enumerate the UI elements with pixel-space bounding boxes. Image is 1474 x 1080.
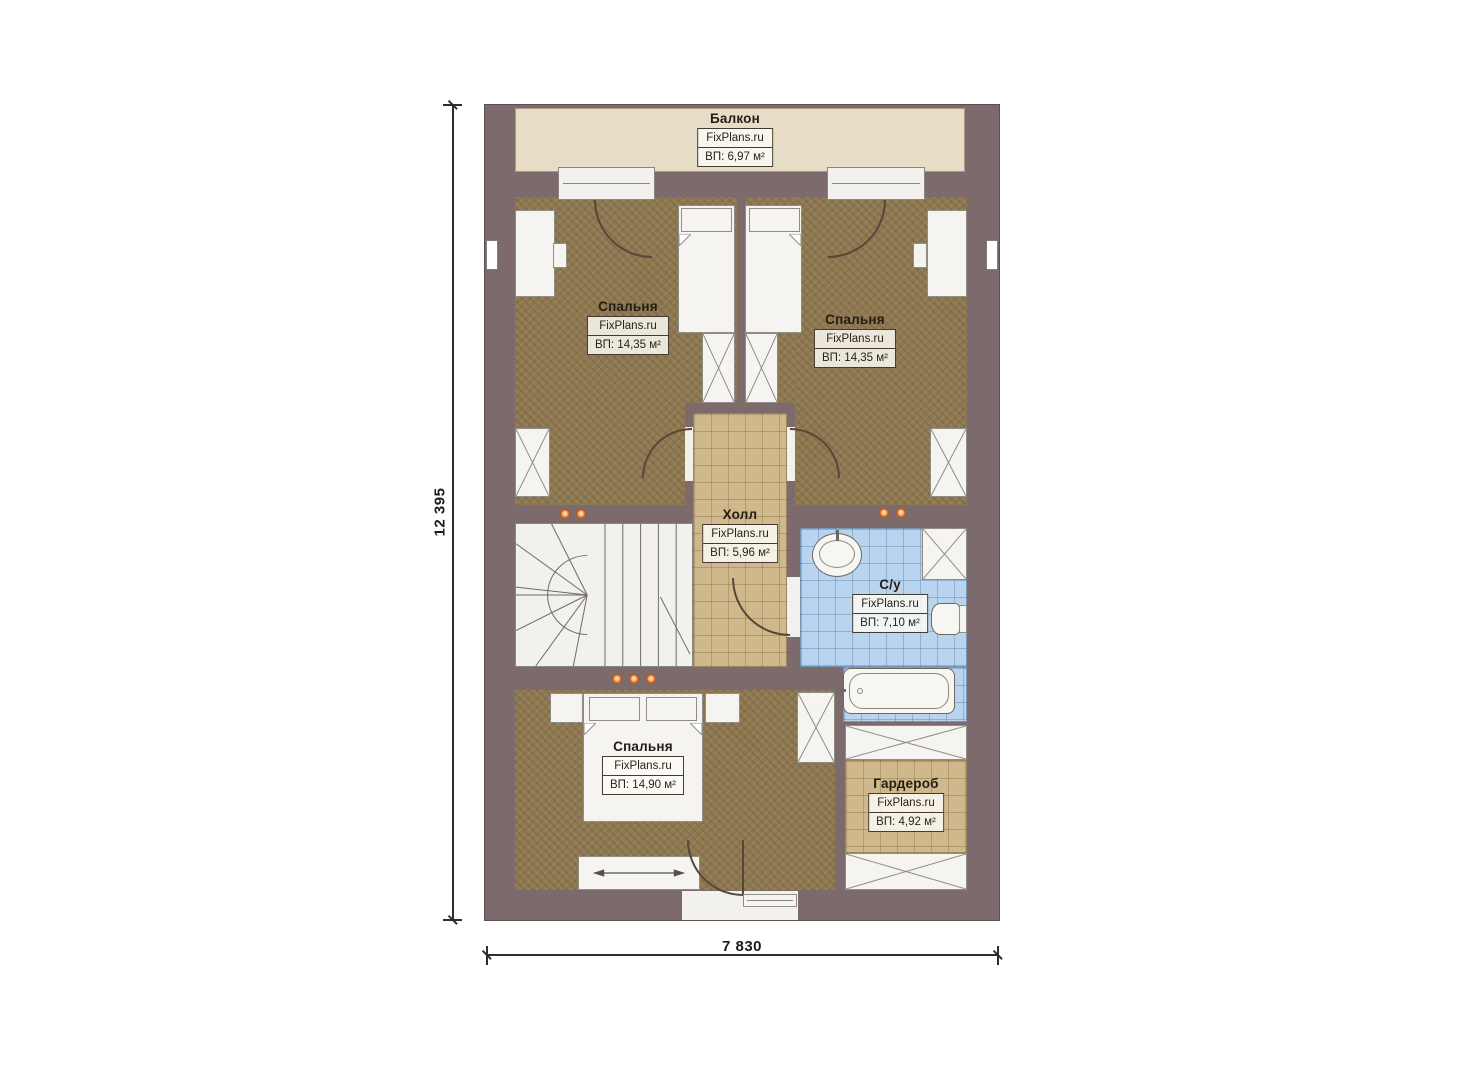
closet [702, 333, 735, 403]
room-area: ВП: 14,35 м² [588, 335, 668, 354]
toilet [931, 603, 960, 635]
closet [797, 692, 835, 763]
room-area: ВП: 14,35 м² [815, 348, 895, 367]
bottom-door-leaf [743, 894, 797, 907]
floor-plan: Балкон FixPlans.ru ВП: 6,97 м² Спальня F… [485, 105, 999, 920]
hall-label: Холл FixPlans.ru ВП: 5,96 м² [702, 507, 778, 563]
closet [930, 428, 967, 497]
room-info-box: FixPlans.ru ВП: 14,90 м² [602, 756, 684, 795]
slide-arrow [579, 857, 699, 889]
room-name: Спальня [587, 299, 669, 314]
balcony-door-right [827, 167, 925, 200]
wall-marker-dot [576, 509, 586, 519]
room-name: Спальня [814, 312, 896, 327]
room-name: Спальня [602, 739, 684, 754]
sink-tap [836, 530, 839, 541]
blanket-fold [584, 723, 596, 735]
desk [515, 210, 555, 297]
pillow [589, 697, 640, 721]
room-name: Гардероб [868, 776, 944, 791]
bathtub-drain [857, 688, 863, 694]
pillow [681, 208, 732, 232]
dresser [578, 856, 700, 890]
blanket-fold [679, 234, 691, 246]
desk [927, 210, 967, 297]
blanket-fold [690, 723, 702, 735]
wall-marker-dot [646, 674, 656, 684]
dimension-line-vertical [452, 105, 454, 920]
brand-watermark: FixPlans.ru [815, 330, 895, 348]
wardrobe-label: Гардероб FixPlans.ru ВП: 4,92 м² [868, 776, 944, 832]
toilet-tank [959, 605, 967, 633]
room-name: Холл [702, 507, 778, 522]
nightstand [550, 693, 583, 723]
blanket-fold [789, 234, 801, 246]
pillow [749, 208, 800, 232]
staircase [515, 523, 693, 667]
brand-watermark: FixPlans.ru [588, 317, 668, 335]
brand-watermark: FixPlans.ru [603, 757, 683, 775]
room-info-box: FixPlans.ru ВП: 5,96 м² [702, 524, 778, 563]
brand-watermark: FixPlans.ru [869, 794, 943, 812]
nightstand [705, 693, 740, 723]
wall-marker-dot [560, 509, 570, 519]
closet [922, 528, 967, 580]
dimension-height: 12 395 [432, 488, 449, 537]
wall-marker-dot [896, 508, 906, 518]
room-info-box: FixPlans.ru ВП: 14,35 м² [814, 329, 896, 368]
room-name: Балкон [697, 111, 773, 126]
floor-plan-page: Балкон FixPlans.ru ВП: 6,97 м² Спальня F… [0, 0, 1474, 1080]
dimension-width: 7 830 [722, 938, 762, 955]
room-info-box: FixPlans.ru ВП: 7,10 м² [852, 594, 928, 633]
stair-treads [516, 524, 692, 666]
room-area: ВП: 7,10 м² [853, 613, 927, 632]
brand-watermark: FixPlans.ru [698, 129, 772, 147]
wall-marker-dot [629, 674, 639, 684]
bathtub-tap [840, 689, 846, 692]
bed-single [678, 205, 735, 333]
balcony-label: Балкон FixPlans.ru ВП: 6,97 м² [697, 111, 773, 167]
room-area: ВП: 6,97 м² [698, 147, 772, 166]
closet [745, 333, 778, 403]
window-left [486, 240, 498, 270]
bathroom-label: С/у FixPlans.ru ВП: 7,10 м² [852, 577, 928, 633]
room-info-box: FixPlans.ru ВП: 6,97 м² [697, 128, 773, 167]
room-area: ВП: 14,90 м² [603, 775, 683, 794]
wall-marker-dot [612, 674, 622, 684]
chair [913, 243, 927, 268]
sink [812, 533, 862, 577]
wardrobe-closet [845, 725, 967, 760]
bed-single [745, 205, 802, 333]
chair [553, 243, 567, 268]
room-name: С/у [852, 577, 928, 592]
brand-watermark: FixPlans.ru [703, 525, 777, 543]
window-right [986, 240, 998, 270]
bedroom-left-label: Спальня FixPlans.ru ВП: 14,35 м² [587, 299, 669, 355]
bathtub [843, 668, 955, 714]
room-area: ВП: 5,96 м² [703, 543, 777, 562]
pillow [646, 697, 697, 721]
closet [515, 428, 550, 497]
bedroom-right-label: Спальня FixPlans.ru ВП: 14,35 м² [814, 312, 896, 368]
wall-marker-dot [879, 508, 889, 518]
wardrobe-closet [845, 853, 967, 890]
room-area: ВП: 4,92 м² [869, 812, 943, 831]
door-leaf [742, 840, 744, 894]
bedroom-bottom-label: Спальня FixPlans.ru ВП: 14,90 м² [602, 739, 684, 795]
room-info-box: FixPlans.ru ВП: 4,92 м² [868, 793, 944, 832]
room-info-box: FixPlans.ru ВП: 14,35 м² [587, 316, 669, 355]
brand-watermark: FixPlans.ru [853, 595, 927, 613]
balcony-door-left [558, 167, 655, 200]
